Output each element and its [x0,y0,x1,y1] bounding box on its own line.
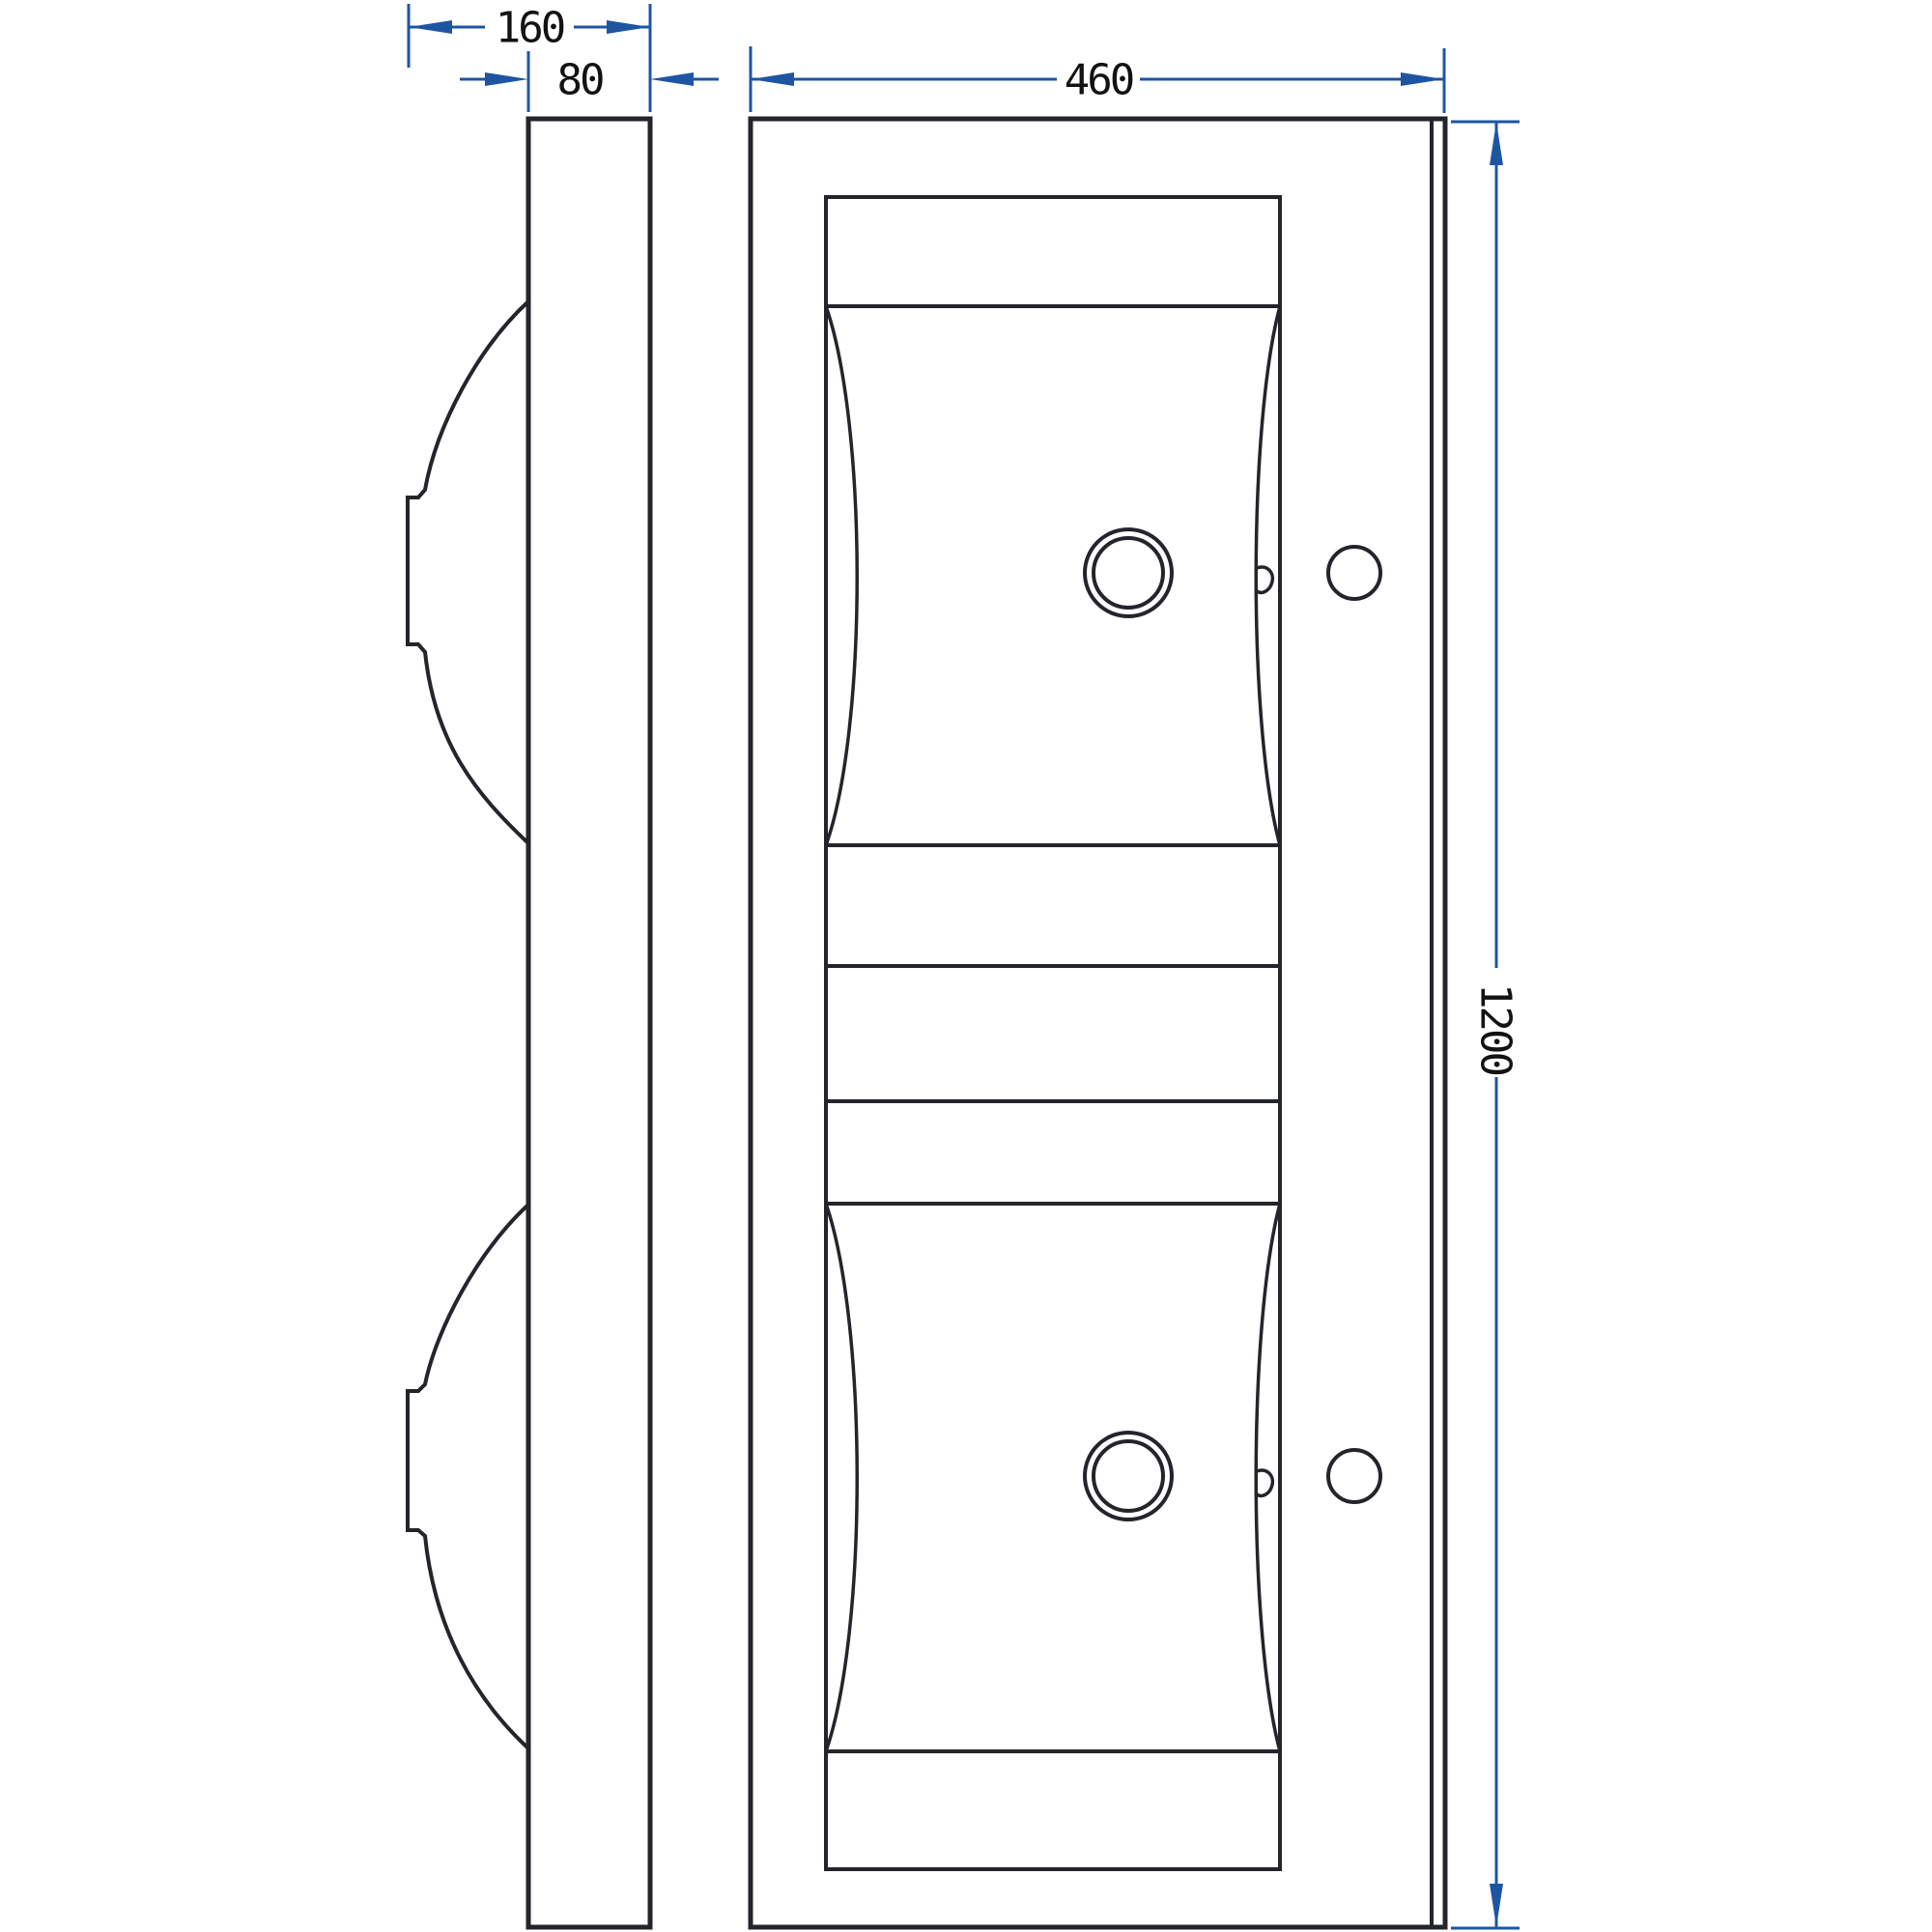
dimension-80: 80 [460,56,719,105]
lower-basin-right-wall-curve [1256,1204,1280,1751]
dim-80-arrow-left [485,72,528,86]
dimension-1200: 1200 [1471,122,1520,1927]
dimension-460: 460 [751,56,1444,105]
dim-1200-arrow-top [1490,122,1503,165]
side-view-lower-bowl-profile [408,1205,528,1748]
upper-basin-left-wall-curve [826,306,857,845]
dimension-160: 160 [409,4,650,53]
upper-drain-outer-circle [1085,529,1172,616]
upper-basin-right-wall-curve [1256,306,1280,845]
dim-1200-arrow-bottom [1490,1884,1503,1927]
side-view-slab-outline [528,119,650,1927]
upper-tap-hole-circle [1328,547,1380,599]
dim-label-total-depth: 160 [496,4,564,53]
basin-cutout-outline [826,197,1280,1869]
dim-160-arrow-left [409,20,452,34]
technical-drawing: 160 80 460 1200 [0,0,1932,1932]
upper-basin-drain [1085,529,1172,616]
dim-label-plan-height: 1200 [1471,983,1520,1074]
lower-basin-left-wall-curve [826,1204,857,1751]
side-profile-view [408,119,650,1927]
dim-160-arrow-right [607,20,650,34]
side-view-upper-bowl-profile [408,301,528,843]
dim-label-plan-width: 460 [1065,56,1133,105]
drawing-canvas: 160 80 460 1200 [0,0,1932,1932]
upper-drain-inner-circle [1094,538,1163,608]
plan-view [751,119,1445,1927]
lower-drain-inner-circle [1094,1441,1163,1511]
lower-basin-drain [1085,1433,1172,1520]
lower-tap-hole-circle [1328,1450,1380,1502]
upper-overflow-notch [1257,567,1272,592]
plan-view-outline [751,119,1445,1927]
dim-460-arrow-left [751,72,794,86]
dim-460-arrow-right [1401,72,1444,86]
dim-label-slab-thickness: 80 [557,56,603,105]
lower-overflow-notch [1257,1470,1272,1495]
dim-80-arrow-right [650,72,694,86]
lower-drain-outer-circle [1085,1433,1172,1520]
